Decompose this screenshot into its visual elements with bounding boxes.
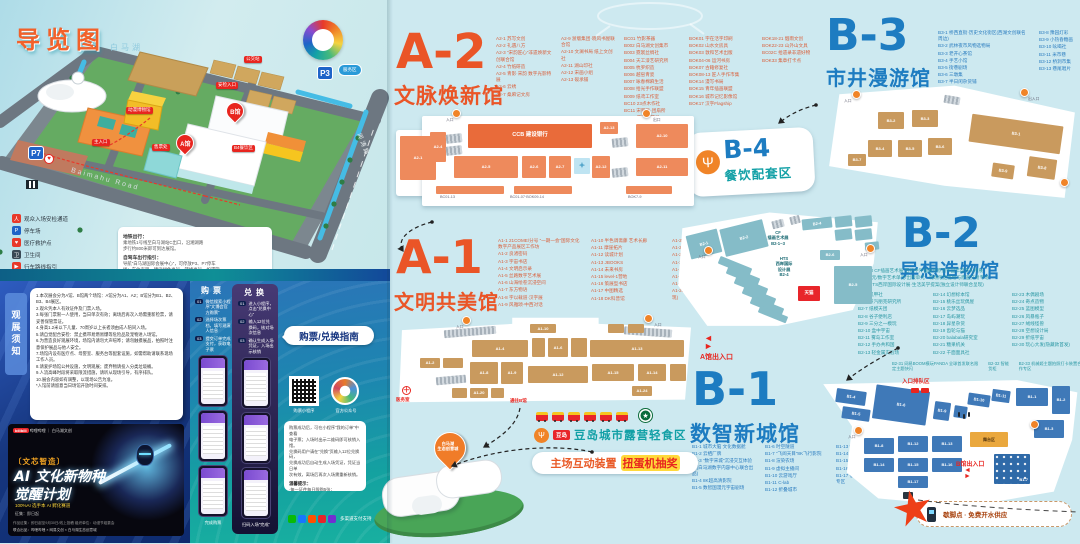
booth: A2-4 (430, 132, 446, 162)
b2-list-entry: B2-25 蓝图模型 (1012, 306, 1080, 312)
buy-header: 购票 (201, 285, 225, 296)
booth-label: 出入口 (1028, 98, 1039, 102)
map-tag: 安检入口 (216, 82, 238, 89)
hts-exhibit-label: HTS 西岸国际 设计展 B2-4 (764, 256, 804, 278)
b3-list-entry: B3-3 老开心茶馆 (938, 51, 1030, 57)
guide-line: 购票成功后，可在小程序“我的订单”中查看 (289, 425, 361, 437)
cf-exhibit-label: CF 插画艺术展 B2-1~3 (758, 230, 798, 246)
a2-list-entry: B002 白马湖文创集市 (624, 43, 680, 49)
booth: A1-4 (472, 340, 528, 357)
a2-list-entry: BOK04-06 运河书房 (689, 58, 753, 64)
water-dispenser-icon (927, 507, 936, 522)
b2-list-entry: B2-31 网易BOOM模玩PANDA 全球首发联名限定主题快闪 (892, 361, 982, 372)
booth: B1-5 (841, 406, 870, 422)
guide-line: 兑换码用户请在“兑换”页输入12位兑换码， (289, 449, 361, 461)
booth-label: 入口 (860, 254, 868, 258)
booth (491, 388, 504, 398)
phone-mockup (198, 355, 228, 407)
booth: A2-5 (454, 156, 518, 178)
poster-brands: bilibili 哔哩哔哩 ｜ 白马湖文创 (13, 428, 72, 434)
booth: B3-2 (878, 112, 904, 129)
b1-floor-plan: 入口排队区 B馆出入口 ◄► B1-4B1-5B1-6B1-9B1-10B1-1… (818, 376, 1080, 512)
a1-list-entry: A1-3 宇宙书店 (498, 259, 582, 265)
b1-list-entry: B1-5 数智国漫元宇宙剧场 (692, 485, 756, 491)
hall-a2-code: A-2 (396, 28, 486, 76)
b3-list-entry: B3-11 米市巷 (1039, 52, 1080, 58)
b3-list-entry: B3-9 小热昏糖画 (1039, 37, 1080, 43)
a1-list-entry: A1-12 读城计划 (591, 252, 663, 258)
redeem-step: 01进入小程序，点击“兑换中心” (238, 301, 274, 317)
official-account-badge (331, 377, 359, 405)
guide-line: 兑换成功后自动生成入场凭证，凭证当日单 (289, 460, 361, 472)
booth-label: BOK7-9 (628, 196, 642, 200)
legend-item: 人观众入场安检通道 (12, 214, 68, 223)
b2-list-entry: B2-27 绒线怪兽 (1012, 321, 1080, 327)
a1-exit-arrows: ◄► (704, 334, 713, 350)
booth (532, 338, 545, 357)
booth: A1-20 (470, 388, 488, 398)
b2-list-entry: B2-26 风暴瓶子 (1012, 314, 1080, 320)
booth: B3-3 (912, 110, 938, 127)
booth: B3-7 (848, 154, 866, 166)
notice-line: *入馆前请留意当日场馆开放时间安排。 (36, 383, 177, 389)
hall-b2-code: B-2 (902, 212, 981, 254)
hall-b4-code: B-4 (723, 133, 806, 162)
booth: A1-6 (548, 338, 568, 357)
guide-tip-line: ·每一证件每日限购5张； (289, 487, 361, 491)
phone-mockup (241, 412, 271, 464)
food-truck-icon (536, 412, 548, 421)
wechat-pay-icon (288, 515, 296, 523)
b2-list-entry: B2-33 机械姬主题拍照打卡装置合作专区 (1019, 361, 1080, 372)
a1-list-entry: A1-4 文明启示录 (498, 266, 582, 272)
bilibili-logo: bilibili (13, 428, 29, 433)
booth (446, 145, 463, 156)
a2-list-entry: BOK01 字在活字印刷 (689, 36, 753, 42)
hall-b3-code: B-3 (826, 14, 908, 58)
booth: A2-12 (592, 156, 610, 178)
a2-list-entry: BOK03 敦和艺术出版 (689, 50, 753, 56)
booth: B3-8 (1027, 156, 1058, 180)
booth: ✦ (574, 158, 590, 174)
b2-list-entry: B2-19 齿轮与猫 (933, 328, 1003, 334)
booth-label: 入口 (848, 436, 856, 440)
a2-list-entry: B004 天工漆艺研究所 (624, 58, 680, 64)
notice-tab: 观展须知 (5, 293, 27, 375)
booth (911, 388, 919, 393)
dining-icon-small: Ψ (534, 428, 549, 443)
a2-list-entry: BOK15 青年插画联盟 (689, 86, 753, 92)
b3-list-entry: B3-4 手艺小馆 (938, 58, 1030, 64)
b2-list-entry: B2-14 幻想标本馆 (933, 292, 1003, 298)
map-tag: 公交站 (244, 56, 262, 63)
poster-subtitle: 100%AI 选手本 AI 孵化赛道 (15, 503, 70, 509)
payment-icons-row: 多渠道支付支持 (288, 515, 372, 523)
a1-list-entry: A1-1 21COME/分号 “一期一会”国际文化数字产品展区工作坊 (498, 238, 582, 250)
legend-item: 卫卫生间 (12, 250, 68, 259)
booth (670, 364, 686, 381)
booth (968, 412, 970, 417)
b1-queue-label: 入口排队区 (902, 377, 930, 385)
redeem-step: 03确认生成入场凭证，入场出示核销 (238, 338, 274, 354)
tips-line: 步行约800米即可到达展馆。 (123, 246, 267, 252)
booth: CCB 建设银行 (468, 124, 592, 148)
b3-exhibitor-list: B3-1 桥西直街·历史文化街区(西湖文创联名周边)B3-2 武林夜市风物选物局… (938, 30, 1080, 86)
b3-list-entry: B3-12 桥洞市集 (1039, 59, 1080, 65)
a1-list-entry: A1-18 DK科普馆 (591, 296, 663, 302)
booth: 通往B馆 (510, 399, 527, 404)
food-truck-icon (584, 412, 596, 421)
starbucks-logo: ★ (638, 408, 653, 423)
a1-list-entry: A1-14 未来书房 (591, 267, 663, 273)
booth-label: 入口 (446, 119, 454, 123)
a2-list-entry: BOK17 汉字Flagship (689, 101, 753, 107)
booth (443, 358, 463, 368)
a2-list-entry: A2-4 竹纸研造 (496, 64, 552, 70)
a2-list-entry: B007 咏春棉麻生活 (624, 79, 680, 85)
guide-info-box: 购票成功后，可在小程序“我的订单”中查看电子票；入场时出示二维码即可核销入馆。兑… (284, 421, 366, 491)
b2-list-entry: B2-15 桃乐丝玩偶屋 (933, 299, 1003, 305)
b3-list-entry: B3-1 桥西直街·历史文化街区(西湖文创联名周边) (938, 30, 1030, 42)
b3-list-entry: B3-6 三墩集 (938, 72, 1030, 78)
booth-label: 入口 (698, 256, 706, 260)
booth (612, 137, 629, 148)
booth: A1-2 (420, 358, 440, 368)
entrance-icon (1030, 420, 1039, 429)
b1-list-entry: B1-4 8K超高清影院 (692, 478, 756, 484)
b2-header-line: B2-1~3 CF插画艺术展·百组中外插画师原创作品年度巡礼特展 (858, 268, 1080, 274)
venue-overview-map: 导览图 白马湖 Baimahu Road 闻涛路 P7 P3 服务区 A馆 B馆… (0, 0, 390, 281)
a2-list-entry: B003 霓裳丝绸社 (624, 50, 680, 56)
guide-line: 次有效，离场后再次入场需重新核销。 (289, 472, 361, 478)
booth-label: 入口 (456, 326, 464, 330)
b2-list-entry: B2-17 岛屿潮玩 (933, 314, 1003, 320)
booth: B1-12 (898, 436, 928, 452)
a1-list-entry: A1-2 良渚密码 (498, 251, 582, 257)
booth: B1-13 (932, 436, 962, 452)
booth (834, 215, 852, 228)
a2-list-entry: A2-5 青影·宋韵 数字光影特展 (496, 71, 552, 83)
qr-caption: 购票小程序 (284, 408, 324, 414)
a2-list-entry: A2-12 宋画小组 (561, 70, 615, 76)
b2-list-entry: B2-13 轻金属实验场 (858, 350, 924, 356)
redeem-step: 02输入12位兑换码，核对场次信息 (238, 319, 274, 335)
booth (571, 338, 587, 357)
b2-list-entry: B2-29 折纸宇宙 (1012, 335, 1080, 341)
booth: A2-13 (600, 122, 618, 134)
page-fold-shadow (387, 0, 393, 543)
booth: B1-1 (1016, 388, 1048, 406)
ticket-qr-code (289, 376, 319, 406)
event-poster: bilibili 哔哩哔哩 ｜ 白马湖文创 〔文芯智造〕 AI 文化新物种 觉醒… (8, 424, 184, 536)
b2-list-header: B2-1~3 CF插画艺术展·百组中外插画师原创作品年度巡礼特展新锐单元/数字艺… (858, 268, 1080, 289)
b1-list-entry: B1-1 城市大脑 文化数据舱 (692, 444, 756, 450)
app-icon (328, 515, 336, 523)
b2-list-bottom-row: B2-31 网易BOOM模玩PANDA 全球首发联名限定主题快闪B2-32 智能… (892, 361, 1080, 372)
booth-label: 入口 (844, 100, 852, 104)
booth (514, 186, 572, 194)
notice-line: 6.为营造良好观展环境，场馆内请勿大声喧哗；请勿触摸展品，拍照时注意保护展品与他… (36, 338, 177, 351)
dining-icon: Ψ (695, 150, 720, 175)
booth: B1-11 (991, 389, 1010, 403)
app-icon (318, 515, 326, 523)
booth: A2-6 (522, 156, 546, 178)
booth: A1-12 (528, 366, 588, 383)
hall-a1-code: A-1 (396, 234, 483, 280)
booth: B3-9 (991, 163, 1015, 180)
phone-mockup (241, 357, 271, 409)
booth (963, 414, 965, 419)
booth-label: 入口 (654, 324, 662, 328)
b2-list-entry: B2-20 balabala研究室 (933, 335, 1003, 341)
booth: A1-10 (530, 324, 556, 333)
booth-label: BC01-13 (440, 196, 455, 200)
food-truck-icon (568, 412, 580, 421)
a2-list-entry: A2-13 砚承铺 (561, 77, 615, 83)
a2-list-entry: BOK33 集章打卡点 (762, 58, 818, 64)
a1-exit-label: A馆出入口 (700, 352, 733, 362)
buy-step: 03提交订单完成支付，获取电子票 (195, 336, 231, 352)
b3-list-entry: B3-10 吆喝社 (1039, 44, 1080, 50)
a2-list-entry: BC02C 拾遗录非遗好物 (762, 50, 818, 56)
hall-b1-code: B-1 (692, 366, 778, 412)
a1-list-entry: A1-16 策展型书店 (591, 281, 663, 287)
map-legend: 人观众入场安检通道P停车场♥医疗救护点卫卫生间▶行车路线指引 (12, 214, 68, 271)
pay-caption: 多渠道支付支持 (340, 516, 372, 522)
a2-list-entry: A2-6 云绣 (496, 84, 552, 90)
a1-list-entry: A1-15 level-1营地 (591, 274, 663, 280)
redeem-footer: 扫码入场“完成” (242, 522, 270, 527)
redeem-header: 兑换 (244, 287, 268, 298)
b3-list-entry: B3-13 巷尾唱片 (1039, 66, 1080, 72)
entrance-icon (452, 109, 461, 118)
poster-title-1: AI 文化新物种 (14, 466, 105, 486)
a2-list-entry: BOK02 山水文房具 (689, 43, 753, 49)
a1-floor-plan: A1-10A1-4A1-6A1-13A1-2A1-8A1-9A1-12A1-15… (396, 316, 700, 408)
a2-list-entry: A2-9 浙版集团·晓风书屋联合馆 (561, 36, 615, 48)
food-zone-title: 豆岛城市露营轻食区 (574, 427, 687, 443)
a2-list-entry: A2-2 礼遇八方 (496, 43, 552, 49)
taobao-icon (308, 515, 316, 523)
booth: B3-4 (868, 140, 892, 157)
booth: A1-13 (590, 340, 684, 357)
booth: B1-17 (898, 476, 928, 488)
booth (953, 405, 968, 419)
badge-caption: 官方公众号 (326, 408, 366, 414)
phone-mockup (241, 467, 271, 519)
booth (921, 388, 929, 393)
entrance-icon (854, 426, 863, 435)
booth: A2-7 (549, 156, 571, 178)
water-station-note: 歇脚点 · 免费开水供应 (916, 501, 1072, 527)
a2-list-entry: A2-10 文澜书局 纸上文创社 (561, 49, 615, 61)
gashapon-label: 扭蛋机抽奖 (621, 455, 680, 471)
notice-line: 7.场馆内设有医疗点、母婴室、服务台等配套设施，如需帮助请联系现场工作人员。 (36, 351, 177, 364)
a1-list-entry: A1-9 风雅颂·中西对话 (498, 302, 582, 308)
a1-list-entry: A1-11 摩崖拓片 (591, 245, 663, 251)
booth: B1-14 (864, 458, 894, 472)
notice-line: 1.本次展会分为A馆、B馆两个场馆：A馆分为A1、A2；B馆分为B1、B2、B3… (36, 293, 177, 306)
guide-bubble: 购票/兑换指南 (284, 326, 374, 345)
booth: ＋ (402, 386, 411, 395)
a1-list-entry: A1-13 JBOOKS (591, 260, 663, 266)
a2-list-entry: BOK16 城市记忆影像馆 (689, 94, 753, 100)
b2-header-line: B2-4 HTS西岸国际设计展·生活美学提案(独立设计师联合呈现) (858, 282, 1080, 288)
food-truck-icon (616, 412, 628, 421)
booth: B2-6 (820, 250, 840, 260)
redeem-steps-column: 兑换 01进入小程序，点击“兑换中心”02输入12位兑换码，核对场次信息03确认… (238, 287, 274, 528)
b1-list-entry: B1-2 云栖厂牌 (692, 451, 756, 457)
a2-list-entry: BC01 竹影茶器 (624, 36, 680, 42)
tips-title-2: 自驾车出行指引： (123, 254, 267, 261)
a2-list-entry: B009 纸鸢工作室 (624, 94, 680, 100)
doudao-logo: 豆岛 (553, 430, 570, 440)
booth: B1-8 (864, 438, 894, 454)
poster-figure (92, 424, 184, 520)
booth (834, 228, 852, 241)
b1-list-entry: B1-3 “数字宋城”沉浸交互体验馆(白马湖数字内容中心联合出品) (692, 458, 756, 477)
booth (628, 324, 644, 333)
food-truck-icon (552, 412, 564, 421)
notice-box: 1.本次展会分为A馆、B馆两个场馆：A馆分为A1、A2；B馆分为B1、B2、B3… (30, 288, 183, 420)
b2-list-entry: B2-32 智能货柜 (988, 361, 1013, 372)
b2-list-entry: B2-12 手办共和国 (858, 342, 924, 348)
buy-footer: 完成购票 (205, 520, 222, 525)
entrance-icon (1020, 88, 1029, 97)
booth: A1-9 (501, 362, 523, 384)
phone-mockup (198, 410, 228, 462)
a2-list-entry: BOK08-13 匠人手作市集 (689, 72, 753, 78)
b1-exit-arrows: ◄► (964, 468, 971, 481)
b3-list-entry: B3-5 街巷剧场 (938, 65, 1030, 71)
booth: A1-14 (638, 364, 666, 381)
b2-list-entry: B2-18 异星杂货 (933, 321, 1003, 327)
a2-exhibitor-list: A2-1 苏写文创A2-2 礼遇八方A2-3 “宋韵匠心”非遗焕新文创联合馆A2… (496, 36, 818, 121)
b3-list-entry: B3-2 武林夜市风物选物局 (938, 43, 1030, 49)
b2-list-entry: B2-30 玩心大发(隐藏款首发) (1012, 342, 1080, 348)
booth (452, 388, 467, 398)
hall-a1-name: 文明共美馆 (394, 286, 499, 315)
booth: B1-7 (994, 454, 1030, 484)
booth: 医务室 (396, 398, 410, 403)
b2-header-line: 新锐单元/数字艺术单元/出版单元 · 现场限定签绘与原画交易专场 (858, 275, 1080, 281)
alipay-icon (298, 515, 306, 523)
poster-line: 征集：即日起 (15, 511, 39, 517)
map-tag: 动漫博物馆 (126, 107, 153, 114)
b2-exhibitor-list: B2-5 机甲社B2-6 蒸汽朋克研究所B2-7 纸模天团B2-8 谷子便利店B… (858, 292, 1080, 356)
a1-list-entry: A1-7 东方物语 (498, 287, 582, 293)
b2-list-entry: B2-28 空想设计局 (1012, 328, 1080, 334)
a2-list-entry: A2-7 桑麻记文房 (496, 92, 552, 98)
entrance-icon (704, 246, 713, 255)
legend-item: ♥医疗救护点 (12, 238, 68, 247)
booth: A1-8 (470, 362, 498, 384)
booth: B2-5 (834, 266, 872, 304)
booth: A2-11 (636, 158, 688, 176)
b3-floor-plan: B3-2B3-3B3-4B3-5B3-6B3-1B3-8B3-9B3-7入口出入… (824, 82, 1080, 204)
poster-footer-1: 作品征集：即日起至9月30日/线上投稿 组织单位：动漫节组委会 (13, 521, 181, 526)
booth (626, 186, 672, 194)
booth (612, 167, 629, 178)
entrance-icon (642, 109, 651, 118)
interactive-label: 主场互动装置 (551, 455, 617, 471)
booth (854, 215, 872, 228)
map-tag: 主入口 (92, 139, 110, 146)
tips-title-1: 地铁出行： (123, 233, 267, 240)
a1-list-entry: A1-8 字以载道·汉字展 (498, 295, 582, 301)
a2-list-entry: A2-1 苏写文创 (496, 36, 552, 42)
water-note-text: 歇脚点 · 免费开水供应 (943, 509, 1007, 519)
a2-list-entry: B008 拾光手作联盟 (624, 86, 680, 92)
b2-list-entry: B2-24 奇点造物 (1012, 299, 1080, 305)
a2-list-entry: BOK18-21 烟雨文创 (762, 36, 818, 42)
entrance-icon (462, 316, 471, 325)
notice-line: 3.每张门票限一人使用，当日单次有效；离场后再次入场需重新检票，请妥善保管票证。 (36, 312, 177, 325)
a2-list-entry: BOK07 古籍修复社 (689, 65, 753, 71)
entrance-icon (852, 90, 861, 99)
guide-line: 电子票；入场时出示二维码即可核销入馆。 (289, 437, 361, 449)
a2-list-entry: B006 越窑青瓷 (624, 72, 680, 78)
booth-label: BC01-07·BOK09-14 (510, 196, 544, 200)
booth (958, 412, 960, 417)
buy-steps-column: 购票 01微信搜索小程序“文博会官方购票”02选择场次票档，填写观演人信息03提… (194, 285, 232, 526)
booth: A1-15 (592, 364, 634, 381)
a2-floor-plan: A2-1A2-4CCB 建设银行A2-13A2-10A2-11A2-5A2-6A… (396, 112, 696, 217)
b2-list-entry: B2-22 千面面具社 (933, 350, 1003, 356)
b2-list-entry: B2-16 云梦选品 (933, 306, 1003, 312)
buy-step: 02选择场次票档，填写观演人信息 (195, 317, 231, 333)
food-zone-row: Ψ 豆岛 豆岛城市露营轻食区 (534, 427, 687, 443)
booth: B1-9 (933, 401, 951, 421)
b2-list-entry: B2-11 雾岛工作室 (858, 335, 924, 341)
booth: A2-10 (636, 124, 688, 148)
map-tag: 售票处 (152, 144, 170, 151)
fold-strip (0, 269, 390, 281)
booth (436, 186, 504, 194)
a2-list-entry: B005 杭罗织造 (624, 65, 680, 71)
a2-list-entry: BC10 23点木作社 (624, 101, 680, 107)
a1-list-entry: A1-6 山海绘卷沉浸空间 (498, 280, 582, 286)
poster-title-2: 觉醒计划 (14, 484, 70, 504)
booth: B3-6 (928, 138, 952, 155)
b2-list-entry: B2-21 糖果机关 (933, 342, 1003, 348)
b2-list-entry: B2-23 木偶剧场 (1012, 292, 1080, 298)
landmark-building: 白马湖 生态创意城 (372, 446, 532, 543)
booth (446, 133, 463, 144)
a1-list-entry: A1-10 半色调斋藤 艺术长廊 (591, 238, 663, 244)
buy-step: 01微信搜索小程序“文博会官方购票” (195, 299, 231, 315)
b3-list-entry: B3-8 豫园灯彩 (1039, 30, 1080, 36)
booth (608, 324, 624, 333)
map-tag: B4餐饮区 (232, 145, 255, 152)
booth-label: 出口 (653, 119, 661, 123)
entrance-icon (1060, 178, 1069, 187)
booth (854, 228, 872, 241)
hall-a2-name: 文脉焕新馆 (394, 80, 504, 110)
a2-list-entry: A2-3 “宋韵匠心”非遗焕新文创联合馆 (496, 50, 552, 62)
booth: 天猫 (798, 286, 820, 301)
a2-list-entry: BOK22-23 山外山文具 (762, 43, 818, 49)
a1-list-entry: A1-5 丝路数字艺术展 (498, 273, 582, 279)
booth: B3-5 (898, 140, 922, 157)
a1-list-entry: A1-17 中图精选 (591, 288, 663, 294)
legend-item: P停车场 (12, 226, 68, 235)
hall-b4-name: 餐饮配套区 (724, 161, 807, 184)
booth: 舞台区 (970, 432, 1008, 447)
a2-list-entry: A2-11 湖山印社 (561, 63, 615, 69)
b2-floor-plan: CF 插画艺术展 B2-1~3 HTS 西岸国际 设计展 B2-4 B2-1B2… (674, 210, 882, 332)
a2-list-entry: BOK14 漫写书局 (689, 79, 753, 85)
